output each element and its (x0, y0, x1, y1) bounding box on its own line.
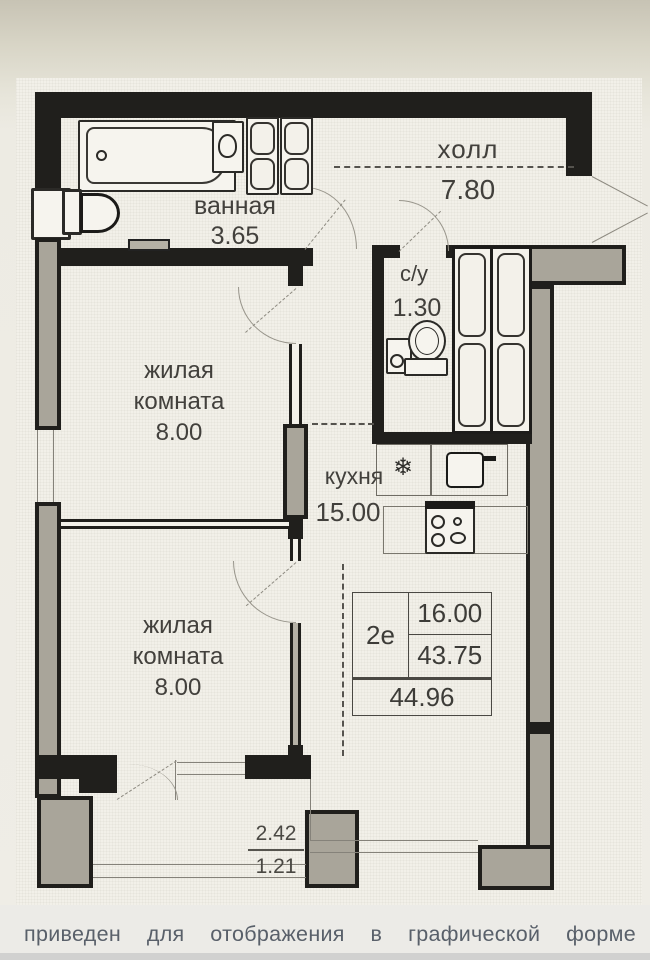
wall-room2-living (290, 623, 301, 745)
wall-room2-bottom-cap (288, 745, 303, 759)
room2-area: 8.00 (98, 672, 258, 703)
bathroom-name-label: ванная (165, 190, 305, 223)
hall-name-label: холл (398, 133, 538, 167)
kitchen-name-label: кухня (316, 462, 392, 492)
unit-type-cell: 2е (352, 592, 409, 678)
toilet-bowl-bathroom (80, 193, 120, 233)
floorplan-photo: { "plan": { "hall": {"name": "холл", "ar… (0, 0, 650, 960)
wall-entry-jamb (528, 245, 626, 285)
wall-left-room1 (35, 238, 61, 430)
area-table: 2е 16.00 43.75 44.96 (352, 592, 492, 716)
wardrobe-cell-3 (458, 343, 486, 427)
stove-back-edge (425, 501, 475, 509)
wall-room-separator (61, 519, 289, 529)
room1-name-line1: жилая (99, 355, 259, 386)
washer-1-drum-top (250, 122, 275, 155)
living-zone-line (342, 564, 344, 756)
caption-word-1: приведен (24, 922, 121, 947)
wall-pillar (283, 424, 308, 519)
counter-divider (430, 444, 432, 496)
room1-area: 8.00 (99, 417, 259, 448)
bathtub-basin (86, 127, 226, 184)
wc-area-label: 1.30 (386, 292, 448, 325)
stove-burner-4 (450, 532, 466, 544)
balcony-door-arc (128, 764, 178, 800)
caption-next-line-hint (0, 953, 650, 960)
caption-word-3: отображения (210, 922, 344, 947)
wall-bottom-right-corner (478, 845, 554, 890)
wall-room2-door-jamb (290, 539, 301, 561)
stove-burner-3 (453, 517, 462, 526)
wardrobe-cell-2 (497, 253, 525, 337)
wall-room2-bottom-step (79, 779, 117, 793)
balcony-area: 1.21 (246, 853, 306, 880)
balcony-right-pier (305, 810, 359, 888)
caption-word-5: графической (408, 922, 540, 947)
facade-line-outer (310, 840, 478, 841)
room2-label: жилая комната 8.00 (98, 610, 258, 704)
balcony-left-pier (37, 796, 93, 888)
window-room1-outer (37, 430, 38, 502)
window-room1-inner (53, 430, 54, 502)
washer-2-drum-top (284, 122, 309, 155)
toilet-tank-bathroom (62, 189, 82, 235)
balcony-dimensions: 2.42 1.21 (246, 820, 306, 881)
entry-door-leaf-bottom (592, 212, 648, 242)
caption-word-2: для (147, 922, 185, 947)
caption-word-4: в (371, 922, 383, 947)
kitchen-sink (446, 452, 484, 488)
kitchen-zone-line (312, 423, 374, 425)
wall-room1-kitchen (289, 344, 302, 424)
wc-toilet-bowl-inner (415, 327, 439, 355)
kitchen-area-label: 15.00 (310, 496, 386, 530)
entry-door-leaf-top (592, 176, 648, 206)
bathroom-area-label: 3.65 (165, 220, 305, 253)
wall-top (35, 92, 592, 118)
wall-room1-door-jamb (288, 248, 303, 286)
living-area-cell: 16.00 (408, 592, 493, 635)
wall-right-joint (526, 722, 554, 734)
wc-toilet-tank (404, 358, 448, 376)
bathtub-drain-icon (96, 150, 107, 161)
fraction-line (248, 849, 304, 851)
balcony-length: 2.42 (246, 820, 306, 847)
stove-burner-1 (431, 515, 445, 529)
hall-area-label: 7.80 (398, 172, 538, 208)
facade-line-inner (310, 852, 478, 853)
total-area-cell: 44.96 (352, 677, 492, 717)
window-balcony-top (177, 762, 245, 763)
wc-sink-bowl (390, 354, 404, 368)
stove-burner-2 (431, 533, 445, 547)
wardrobe-cell-1 (458, 253, 486, 337)
wall-room2-bottom-left (35, 755, 117, 779)
room1-label: жилая комната 8.00 (99, 355, 259, 449)
caption-word-6: форме (566, 922, 636, 947)
wall-left-room2 (35, 502, 61, 798)
wardrobe-divider (490, 248, 493, 432)
room2-name-line2: комната (98, 641, 258, 672)
facade-line-left (310, 779, 311, 840)
washer-1-drum-bottom (250, 158, 275, 190)
caption-text: приведен для отображения в графической ф… (24, 918, 636, 950)
room1-name-line2: комната (99, 386, 259, 417)
wall-separator-cap (288, 519, 303, 539)
wall-niche (128, 239, 170, 251)
window-balcony-bottom (177, 774, 245, 775)
apartment-plan: ❄ холл 7.80 ванная 3.65 с/у 1.30 кухня 1… (0, 0, 650, 960)
washer-2-drum-bottom (284, 158, 309, 190)
wc-name-label: с/у (388, 260, 440, 289)
kitchen-sink-tap (482, 456, 496, 461)
bathroom-sink-bowl (218, 134, 237, 158)
area-without-balcony-cell: 43.75 (408, 634, 493, 679)
wall-left-upper (35, 92, 61, 190)
wall-wc-left (372, 250, 384, 432)
wardrobe-cell-4 (497, 343, 525, 427)
room2-name-line1: жилая (98, 610, 258, 641)
